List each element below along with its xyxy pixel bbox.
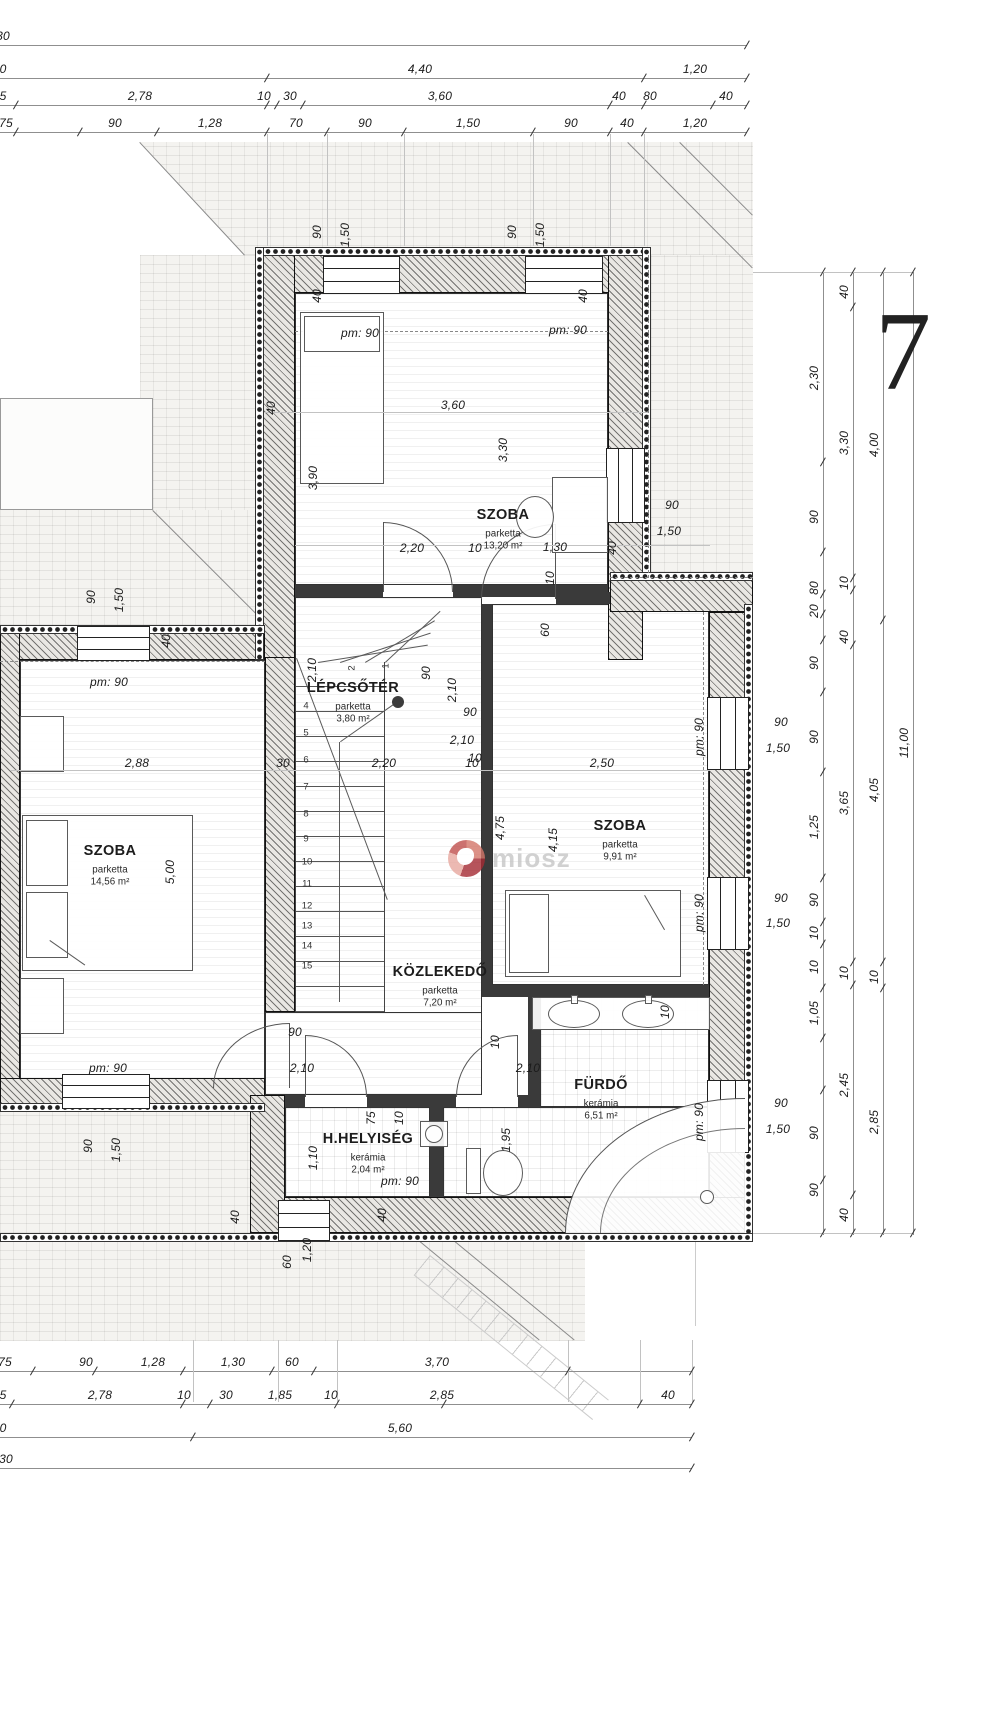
dim-tick <box>820 1175 826 1184</box>
dim-tick <box>820 939 826 948</box>
dim-tick <box>910 267 916 276</box>
dimension-label: 90 <box>564 116 578 130</box>
plan-annotation: 1,50 <box>766 1122 790 1136</box>
plan-annotation: 90 <box>84 590 98 604</box>
dim-tick <box>689 1366 695 1375</box>
dimension-label: 2,85 <box>867 1110 881 1134</box>
plan-annotation: 90 <box>774 715 788 729</box>
plan-annotation: 3,90 <box>306 466 320 490</box>
plan-annotation: 40 <box>375 1208 389 1222</box>
dim-tick <box>154 127 160 136</box>
dimension-label: 2,78 <box>88 1388 112 1402</box>
dim-tick <box>311 1366 317 1375</box>
plan-annotation: 40 <box>605 541 619 555</box>
room-name: LÉPCSŐTÉR <box>307 680 399 696</box>
plan-annotation: pm: 90 <box>692 894 706 932</box>
plan-annotation: 60 <box>538 623 552 637</box>
dim-tick <box>850 267 856 276</box>
dim-tick <box>744 127 750 136</box>
dim-tick <box>274 100 280 109</box>
plan-annotation: 3,60 <box>441 398 465 412</box>
dim-tick <box>641 73 647 82</box>
room-area: 3,80 m² <box>336 714 369 725</box>
dim-tick <box>13 100 19 109</box>
room-name: H.HELYISÉG <box>323 1131 414 1147</box>
dimension-label: 30 <box>283 89 297 103</box>
plan-annotation: 2,10 <box>290 1061 314 1075</box>
stair-number: 11 <box>302 879 312 890</box>
dimension-label: 90 <box>807 893 821 907</box>
plan-annotation: 1,30 <box>543 540 567 554</box>
plan-annotation: 90 <box>774 1096 788 1110</box>
room-material: kerámia <box>351 1153 386 1164</box>
room-material: parketta <box>422 986 457 997</box>
plan-annotation: 2,20 <box>400 541 424 555</box>
plan-annotation: 2,88 <box>125 756 149 770</box>
dimension-label: 5,60 <box>388 1421 412 1435</box>
dim-tick <box>744 73 750 82</box>
dimension-label: 4,40 <box>408 62 432 76</box>
room-area: 13,20 m² <box>484 541 523 552</box>
dim-tick <box>820 1033 826 1042</box>
room-material: kerámia <box>584 1099 619 1110</box>
plan-annotation: 2,10 <box>516 1061 540 1075</box>
dimension-label: 3,70 <box>425 1355 449 1369</box>
stair-number: 6 <box>303 755 308 766</box>
room-material: parketta <box>485 529 520 540</box>
plan-annotation: 1,50 <box>338 223 352 247</box>
plan-annotation: 10 <box>392 1111 406 1125</box>
dim-tick <box>850 302 856 311</box>
dimension-label: 90 <box>807 730 821 744</box>
plan-annotation: 1,50 <box>766 741 790 755</box>
dim-tick <box>641 100 647 109</box>
dim-tick <box>820 457 826 466</box>
dim-tick <box>77 127 83 136</box>
dimension-label: 20 <box>807 604 821 618</box>
dimension-label: 10 <box>837 966 851 980</box>
dim-tick <box>820 1228 826 1237</box>
dimension-label: 40 <box>837 1208 851 1222</box>
stair-number: 9 <box>303 834 308 845</box>
dimension-label: 4,00 <box>867 433 881 457</box>
dim-tick <box>880 1228 886 1237</box>
dim-tick <box>190 1432 196 1441</box>
plan-annotation: 1,10 <box>306 1146 320 1170</box>
plan-annotation: pm: 90 <box>89 1061 127 1075</box>
dimension-label: 2,85 <box>430 1388 454 1402</box>
dim-tick <box>607 100 613 109</box>
plan-annotation: 90 <box>81 1139 95 1153</box>
plan-annotation: 75 <box>364 1111 378 1125</box>
dimension-label: 30 <box>219 1388 233 1402</box>
stair-number: 8 <box>303 809 308 820</box>
dim-tick <box>565 1366 571 1375</box>
plan-annotation: 2,20 <box>372 756 396 770</box>
plan-annotation: 40 <box>264 401 278 415</box>
plan-annotation: pm: 90 <box>692 718 706 756</box>
room-name: SZOBA <box>594 818 647 834</box>
dim-tick <box>820 687 826 696</box>
plan-annotation: pm: 90 <box>341 326 379 340</box>
plan-annotation: 1,50 <box>657 524 681 538</box>
dimension-label: 10 <box>867 970 881 984</box>
dim-tick <box>744 40 750 49</box>
dim-tick <box>880 983 886 992</box>
dimension-label: 10 <box>807 960 821 974</box>
room-area: 6,51 m² <box>584 1111 617 1122</box>
plan-annotation: 1,95 <box>499 1128 513 1152</box>
plan-annotation: 10 <box>468 751 482 765</box>
dim-tick <box>637 1399 643 1408</box>
dimension-label: 30 <box>0 29 10 43</box>
room-name: KÖZLEKEDŐ <box>393 964 488 980</box>
dimension-label: 90 <box>807 1126 821 1140</box>
room-area: 9,91 m² <box>603 852 636 863</box>
dim-tick <box>744 100 750 109</box>
dim-tick <box>820 917 826 926</box>
dimension-label: 40 <box>719 89 733 103</box>
dimension-label: 10 <box>807 926 821 940</box>
dim-tick <box>264 73 270 82</box>
dimension-label: 0 <box>0 1421 6 1435</box>
dimension-label: 4,05 <box>867 778 881 802</box>
dimension-label: 30 <box>0 1452 13 1466</box>
dimension-label: 1,20 <box>683 62 707 76</box>
dimension-label: 90 <box>79 1355 93 1369</box>
dimension-label: 1,85 <box>268 1388 292 1402</box>
dim-tick <box>30 1366 36 1375</box>
plan-annotation: 40 <box>310 289 324 303</box>
dim-tick <box>880 267 886 276</box>
plan-annotation: 1,50 <box>112 588 126 612</box>
dimension-label: 5 <box>0 1388 6 1402</box>
dim-tick <box>820 873 826 882</box>
dimension-label: 1,30 <box>221 1355 245 1369</box>
dim-tick <box>850 1228 856 1237</box>
dimension-label: 40 <box>837 285 851 299</box>
plan-annotation: 90 <box>774 891 788 905</box>
plan-annotation: 90 <box>419 666 433 680</box>
dimension-label: 2,45 <box>837 1073 851 1097</box>
dimension-label: 1,28 <box>141 1355 165 1369</box>
room-area: 2,04 m² <box>351 1165 384 1176</box>
room-area: 14,56 m² <box>91 877 130 888</box>
plan-annotation: 10 <box>468 541 482 555</box>
dimension-label: 11,00 <box>897 728 911 758</box>
plan-annotation: 60 <box>280 1255 294 1269</box>
plan-annotation: 90 <box>288 1025 302 1039</box>
dimension-label: 90 <box>358 116 372 130</box>
stair-number: 5 <box>303 728 308 739</box>
dim-tick <box>820 983 826 992</box>
room-area: 7,20 m² <box>423 998 456 1009</box>
floor-plan-canvas: 7 miosz 3004,401,2052,7810303,6040804075… <box>0 0 1000 1717</box>
room-name: SZOBA <box>84 843 137 859</box>
dimension-label: 90 <box>807 1183 821 1197</box>
stair-number: 10 <box>302 857 313 868</box>
dim-tick <box>880 957 886 966</box>
dim-tick <box>180 1366 186 1375</box>
dimension-label: 40 <box>837 630 851 644</box>
dim-tick <box>264 127 270 136</box>
annotation-layer: 3004,401,2052,7810303,6040804075901,2870… <box>0 0 1000 1717</box>
dim-tick <box>820 267 826 276</box>
dim-tick <box>324 127 330 136</box>
dim-tick <box>910 1228 916 1237</box>
stair-number: 2 <box>347 665 358 670</box>
dimension-label: 5 <box>0 89 6 103</box>
dim-tick <box>300 100 306 109</box>
dim-tick <box>820 547 826 556</box>
dim-tick <box>689 1463 695 1472</box>
dimension-label: 80 <box>807 581 821 595</box>
dimension-label: 3,65 <box>837 791 851 815</box>
dim-tick <box>401 127 407 136</box>
plan-annotation: 2,50 <box>590 756 614 770</box>
plan-annotation: 90 <box>505 225 519 239</box>
dimension-label: 90 <box>807 510 821 524</box>
dim-tick <box>530 127 536 136</box>
plan-annotation: 1,50 <box>766 916 790 930</box>
dimension-label: 90 <box>807 656 821 670</box>
stair-number: 4 <box>303 701 308 712</box>
dimension-label: 75 <box>0 116 13 130</box>
dimension-label: 40 <box>661 1388 675 1402</box>
dim-tick <box>207 1399 213 1408</box>
dimension-label: 1,25 <box>807 815 821 839</box>
dimension-label: 2,78 <box>128 89 152 103</box>
stair-number: 1 <box>381 663 392 668</box>
dimension-label: 75 <box>0 1355 12 1369</box>
dim-tick <box>850 1190 856 1199</box>
plan-annotation: 3,30 <box>496 438 510 462</box>
dimension-label: 2,30 <box>807 366 821 390</box>
room-material: parketta <box>602 840 637 851</box>
plan-annotation: 40 <box>576 289 590 303</box>
plan-annotation: 40 <box>159 634 173 648</box>
dim-tick <box>13 127 19 136</box>
plan-annotation: 2,10 <box>450 733 474 747</box>
plan-annotation: pm: 90 <box>692 1103 706 1141</box>
plan-annotation: 1,50 <box>109 1138 123 1162</box>
dimension-label: 1,28 <box>198 116 222 130</box>
dim-tick <box>607 127 613 136</box>
dimension-label: 10 <box>324 1388 338 1402</box>
plan-annotation: 2,10 <box>305 658 319 682</box>
plan-annotation: 40 <box>228 1210 242 1224</box>
dim-tick <box>710 100 716 109</box>
plan-annotation: 1,20 <box>300 1238 314 1262</box>
dimension-label: 70 <box>289 116 303 130</box>
dimension-label: 40 <box>620 116 634 130</box>
plan-annotation: pm: 90 <box>90 675 128 689</box>
dim-tick <box>689 1399 695 1408</box>
stair-number: 12 <box>302 901 313 912</box>
plan-annotation: 10 <box>543 571 557 585</box>
dimension-label: 3,30 <box>837 431 851 455</box>
plan-annotation: 1,50 <box>533 223 547 247</box>
stair-number: 14 <box>302 941 313 952</box>
plan-annotation: 2,10 <box>445 678 459 702</box>
stair-number: 15 <box>302 961 313 972</box>
plan-annotation: 10 <box>658 1005 672 1019</box>
dim-tick <box>820 1085 826 1094</box>
plan-annotation: pm: 90 <box>381 1174 419 1188</box>
dimension-label: 3,60 <box>428 89 452 103</box>
plan-annotation: 90 <box>310 225 324 239</box>
plan-annotation: 5,00 <box>163 860 177 884</box>
dim-tick <box>820 635 826 644</box>
plan-annotation: 90 <box>463 705 477 719</box>
dim-tick <box>269 1366 275 1375</box>
plan-annotation: pm: 90 <box>549 323 587 337</box>
room-material: parketta <box>335 702 370 713</box>
dim-tick <box>820 767 826 776</box>
dimension-label: 10 <box>837 576 851 590</box>
plan-annotation: 4,15 <box>546 828 560 852</box>
dim-tick <box>9 1399 15 1408</box>
room-name: SZOBA <box>477 507 530 523</box>
dimension-label: 90 <box>108 116 122 130</box>
dim-tick <box>689 1432 695 1441</box>
stair-number: 13 <box>302 921 313 932</box>
room-material: parketta <box>92 865 127 876</box>
plan-annotation: 4,75 <box>493 816 507 840</box>
dim-tick <box>641 127 647 136</box>
plan-annotation: 10 <box>488 1035 502 1049</box>
dim-tick <box>880 615 886 624</box>
dimension-label: 60 <box>285 1355 299 1369</box>
plan-annotation: 30 <box>276 756 290 770</box>
dimension-label: 40 <box>612 89 626 103</box>
room-name: FÜRDŐ <box>574 1077 628 1093</box>
plan-annotation: 90 <box>665 498 679 512</box>
stair-number: 7 <box>303 782 308 793</box>
dim-tick <box>850 573 856 582</box>
dim-tick <box>850 957 856 966</box>
dimension-label: 1,05 <box>807 1001 821 1025</box>
dimension-label: 1,20 <box>683 116 707 130</box>
dim-tick <box>850 980 856 989</box>
dimension-label: 1,50 <box>456 116 480 130</box>
dimension-label: 0 <box>0 62 6 76</box>
